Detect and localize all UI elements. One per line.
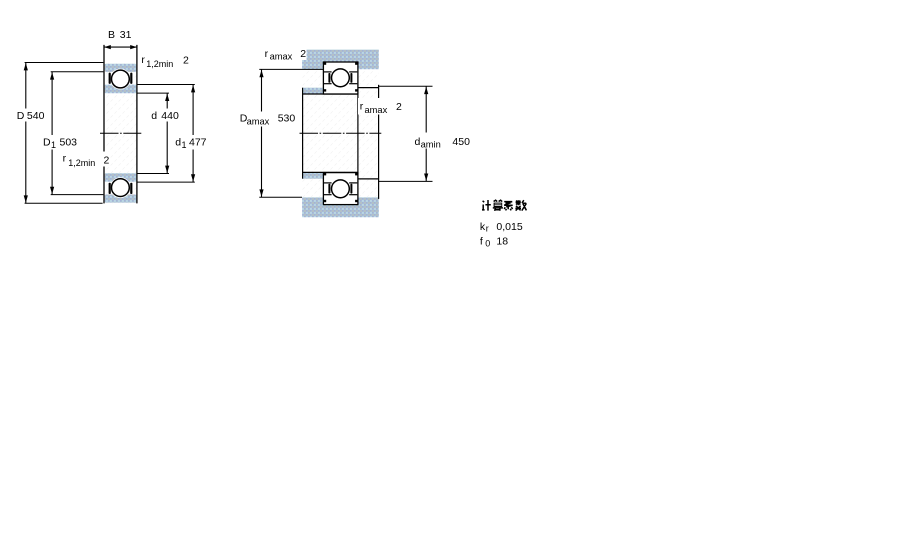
svg-text:0,015: 0,015 (496, 221, 522, 233)
svg-text:f: f (480, 236, 483, 248)
svg-text:amax: amax (365, 105, 388, 115)
svg-text:B: B (108, 29, 115, 41)
svg-text:477: 477 (189, 137, 207, 149)
svg-text:2: 2 (104, 155, 110, 167)
svg-text:2: 2 (183, 54, 189, 66)
svg-text:1: 1 (51, 140, 56, 150)
svg-text:D: D (43, 137, 51, 149)
svg-text:530: 530 (278, 113, 296, 125)
svg-text:d: d (175, 137, 181, 149)
svg-text:amin: amin (421, 139, 441, 149)
svg-text:r: r (486, 224, 489, 234)
svg-text:1,2min: 1,2min (146, 59, 173, 69)
svg-text:amax: amax (270, 52, 293, 62)
svg-text:1,2min: 1,2min (68, 158, 95, 168)
svg-text:450: 450 (452, 136, 470, 148)
svg-text:d: d (151, 110, 157, 122)
svg-text:r: r (63, 152, 67, 164)
svg-text:amax: amax (247, 116, 270, 126)
svg-text:503: 503 (60, 137, 78, 149)
svg-text:0: 0 (485, 239, 490, 249)
svg-text:2: 2 (396, 101, 402, 113)
svg-text:18: 18 (496, 236, 508, 248)
svg-text:31: 31 (120, 29, 132, 41)
svg-text:D: D (17, 110, 25, 122)
svg-text:r: r (265, 48, 269, 60)
svg-text:2: 2 (300, 48, 306, 60)
svg-text:r: r (360, 101, 364, 113)
svg-text:440: 440 (161, 110, 179, 122)
svg-text:r: r (141, 54, 145, 66)
svg-text:d: d (415, 136, 421, 148)
svg-text:540: 540 (27, 110, 45, 122)
svg-text:1: 1 (182, 140, 187, 150)
